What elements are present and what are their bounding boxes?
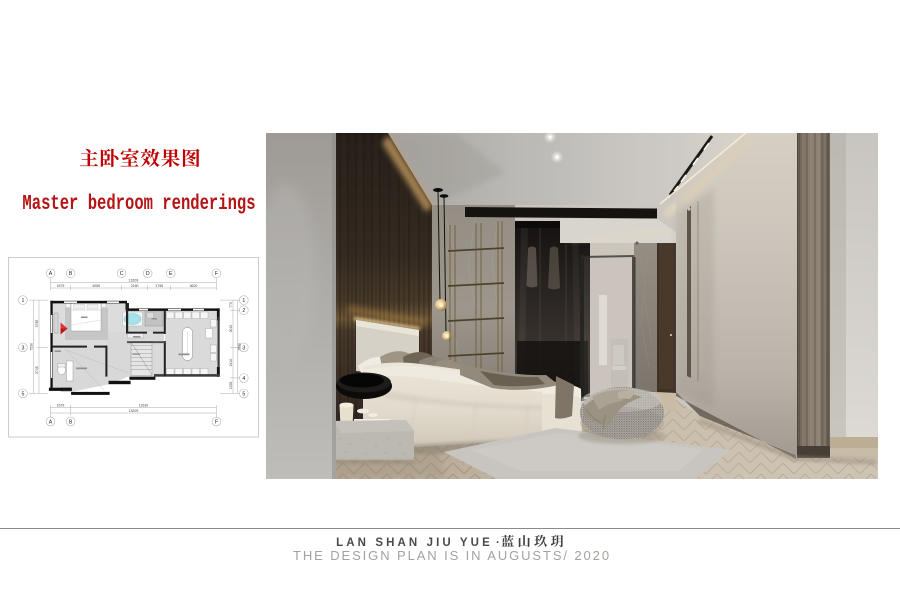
svg-text:5: 5: [242, 391, 245, 397]
svg-text:2160: 2160: [131, 284, 139, 288]
svg-text:11630: 11630: [139, 403, 149, 407]
svg-text:A: A: [49, 271, 53, 277]
svg-text:3010: 3010: [229, 325, 233, 333]
svg-text:775: 775: [229, 302, 233, 308]
svg-text:3785: 3785: [35, 320, 39, 328]
svg-text:1795: 1795: [155, 284, 163, 288]
svg-text:2410: 2410: [229, 359, 233, 367]
svg-text:1579: 1579: [57, 403, 65, 407]
svg-text:F: F: [215, 271, 218, 277]
svg-text:3: 3: [21, 345, 24, 351]
svg-text:7530: 7530: [30, 343, 34, 351]
svg-text:7530: 7530: [238, 343, 242, 351]
svg-text:13209: 13209: [129, 409, 139, 413]
svg-text:3: 3: [242, 345, 245, 351]
svg-text:2: 2: [242, 308, 245, 314]
svg-text:B: B: [69, 419, 73, 425]
svg-text:1: 1: [21, 298, 24, 304]
svg-text:4: 4: [242, 376, 245, 382]
svg-text:A: A: [49, 419, 53, 425]
svg-text:1335: 1335: [229, 382, 233, 390]
svg-text:C: C: [120, 271, 124, 277]
svg-text:4055: 4055: [92, 284, 100, 288]
svg-text:B: B: [69, 271, 73, 277]
svg-text:5: 5: [21, 391, 24, 397]
svg-text:3745: 3745: [35, 366, 39, 374]
svg-text:F: F: [215, 419, 218, 425]
svg-text:1579: 1579: [57, 284, 65, 288]
svg-text:E: E: [169, 271, 173, 277]
svg-text:3620: 3620: [190, 284, 198, 288]
svg-text:1: 1: [242, 298, 245, 304]
svg-text:13209: 13209: [129, 278, 139, 282]
svg-text:D: D: [146, 271, 150, 277]
